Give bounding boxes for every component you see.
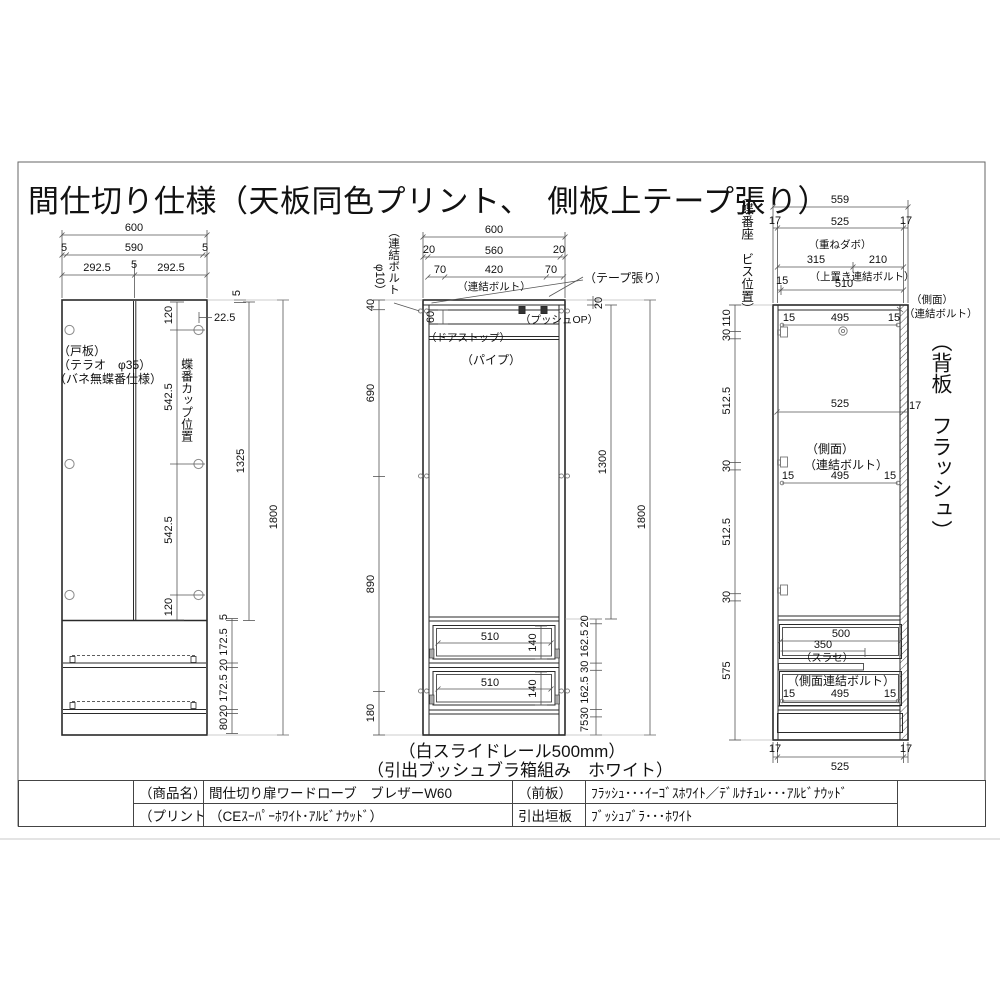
dim-label: 15: [783, 688, 795, 700]
dim-label: 80: [218, 718, 230, 730]
dim-label: 890: [365, 575, 377, 593]
connecting-bolt-vertical-label: （連結ボルト: [387, 226, 399, 295]
dim-label: 420: [485, 264, 503, 276]
dim-label: 510: [835, 278, 853, 290]
product-name-label: （商品名）: [134, 781, 204, 804]
dim-label: 690: [365, 384, 377, 402]
top-unit-bolt-label: （上置き連結ボルト）: [810, 270, 915, 283]
slide-rail-caption: （白スライドレール500mm）: [399, 742, 626, 761]
dim-label: 560: [485, 245, 503, 257]
offset-label: （スラセ）: [801, 652, 854, 664]
dim-label: 15: [782, 470, 794, 482]
product-name-value: 間仕切り扉ワードローブ ブレザーW60: [204, 781, 513, 804]
front-panel-label: （前板）: [513, 781, 586, 804]
spec-table-wrapper: （商品名） 間仕切り扉ワードローブ ブレザーW60 （前板） ﾌﾗｯｼｭ･･･ｲ…: [18, 780, 986, 827]
dim-label: 120: [163, 306, 175, 324]
side-connecting-bolt-label: （側面連結ボルト）: [787, 674, 895, 688]
dim-label: 559: [831, 194, 849, 206]
dim-label: 525: [831, 216, 849, 228]
dim-label: 70: [545, 264, 557, 276]
dim-label: 495: [831, 312, 849, 324]
dim-label: 600: [485, 224, 503, 236]
dim-label: 5: [218, 614, 230, 620]
side-face-label: （側面）: [806, 442, 854, 456]
dim-label: 495: [831, 470, 849, 482]
dim-label: 110: [721, 309, 733, 327]
hinge-seat-screw-position-label: （蝶番座 ビス位置）: [739, 190, 752, 315]
dim-label: 315: [807, 254, 825, 266]
drawer-front-value: ﾌﾞｯｼｭﾌﾞﾗ･･･ﾎﾜｲﾄ: [586, 804, 898, 827]
left-view-dimension-text: 600 5 590 5 292.5 5 292.5 22.5 5 120 542…: [54, 222, 280, 730]
dim-label: 40: [365, 299, 377, 311]
dim-label: 15: [776, 275, 788, 287]
dim-label: 292.5: [83, 262, 111, 274]
dim-label: 60: [425, 311, 437, 323]
drawer-box-caption: （引出ブッシュブラ箱組み ホワイト）: [367, 760, 673, 780]
dim-label: 20: [218, 659, 230, 671]
dim-label: 292.5: [157, 262, 185, 274]
dim-label: 20: [579, 615, 591, 627]
connecting-bolt-label: （連結ボルト）: [457, 280, 531, 293]
dim-label: 30: [579, 661, 591, 673]
dim-label: 1325: [235, 449, 247, 473]
tape-label: （テープ張り）: [584, 271, 667, 285]
dim-label: 17: [900, 215, 912, 227]
dim-label: 350: [814, 639, 832, 651]
spec-empty-left-cell: [19, 781, 134, 827]
spec-table: （商品名） 間仕切り扉ワードローブ ブレザーW60 （前板） ﾌﾗｯｼｭ･･･ｲ…: [18, 780, 986, 827]
dim-label: 210: [869, 254, 887, 266]
door-stop-label: （ドアストップ）: [426, 332, 510, 344]
spec-empty-right-cell: [898, 781, 986, 827]
dim-label: 162.5: [579, 630, 591, 658]
dim-label: 1800: [636, 505, 648, 529]
dim-label: 542.5: [163, 383, 175, 411]
dim-label: 180: [365, 704, 377, 722]
dim-label: 120: [163, 598, 175, 616]
dim-label: 17: [769, 743, 781, 755]
push-opener-label: （プッシュOP）: [520, 314, 598, 326]
drawer-front-label: 引出垣板: [513, 804, 586, 827]
dim-label: 20: [593, 297, 605, 309]
dim-label: 30: [721, 460, 733, 472]
dim-label: 575: [721, 661, 733, 679]
dim-label: 525: [831, 761, 849, 773]
middle-view-dimension-lines: [373, 232, 656, 735]
dim-label: 512.5: [721, 387, 733, 415]
dim-label: 172.5: [218, 674, 230, 702]
stacking-dowel-label: （重ねダボ）: [809, 238, 872, 251]
dim-label: 512.5: [721, 518, 733, 546]
side-face-label: （側面）: [911, 293, 953, 306]
connecting-bolt-label: （連結ボルト）: [904, 307, 978, 320]
dim-label: 1800: [268, 505, 280, 529]
dim-label: 1300: [597, 450, 609, 474]
dim-label: 500: [832, 628, 850, 640]
dim-label: 542.5: [163, 516, 175, 544]
terao-note: （テラオ φ35）: [58, 358, 151, 372]
dim-label: 5: [131, 259, 137, 271]
dim-label: 22.5: [214, 312, 235, 324]
dim-label: 30: [721, 329, 733, 341]
dim-label: 17: [900, 743, 912, 755]
drawing-canvas: 600 5 590 5 292.5 5 292.5 22.5 5 120 542…: [0, 0, 1000, 1000]
hinge-spec-note: （バネ無蝶番仕様）: [54, 371, 162, 386]
dim-label: 20: [423, 244, 435, 256]
dim-label: 495: [831, 688, 849, 700]
hinge-cup-position-label: 蝶番カップ位置: [180, 358, 193, 442]
dim-label: 600: [125, 222, 143, 234]
dim-label: 140: [527, 633, 539, 651]
print-name-label: （プリント名）: [134, 804, 204, 827]
page-title: 間仕切り仕様（天板同色プリント、 側板上テープ張り）: [28, 176, 829, 221]
dim-label: 5: [202, 242, 208, 254]
dim-label: 75: [579, 720, 591, 732]
back-panel-flush-label: （背板 フラッシュ）: [929, 331, 951, 541]
right-view-hardware: [778, 323, 900, 703]
dim-label: 70: [434, 264, 446, 276]
dim-label: 5: [231, 290, 243, 296]
dim-label: 15: [884, 688, 896, 700]
pipe-label: （パイプ）: [461, 353, 521, 367]
dim-label: 162.5: [579, 676, 591, 704]
left-view-dimension-lines: [60, 230, 290, 735]
door-panel-note: （戸板）: [58, 344, 106, 358]
dim-label: 510: [481, 677, 499, 689]
dim-label: 510: [481, 631, 499, 643]
dim-label: 20: [553, 244, 565, 256]
dim-label: 15: [783, 312, 795, 324]
dim-label: 17: [909, 400, 921, 412]
dim-label: 15: [884, 470, 896, 482]
dim-label: 590: [125, 242, 143, 254]
dim-label: 30: [579, 707, 591, 719]
dim-label: 30: [721, 591, 733, 603]
dim-label: 20: [218, 705, 230, 717]
front-panel-value: ﾌﾗｯｼｭ･･･ｲｰｺﾞｽﾎﾜｲﾄ／ﾃﾞﾙﾅﾁｭﾚ･･･ｱﾙﾋﾞﾅｳｯﾄﾞ: [586, 781, 898, 804]
print-name-value: （CEｽｰﾊﾟｰﾎﾜｲﾄ･ｱﾙﾋﾞﾅｳｯﾄﾞ）: [204, 804, 513, 827]
bolt-diameter-label: φ10）: [373, 264, 385, 296]
dim-label: 525: [831, 398, 849, 410]
technical-drawing-page: { "title": "間仕切り仕様（天板同色プリント、 側板上テープ張り）",…: [0, 0, 1000, 1000]
dim-label: 5: [61, 242, 67, 254]
dim-label: 15: [888, 312, 900, 324]
dim-label: 172.5: [218, 628, 230, 656]
dim-label: 140: [527, 679, 539, 697]
